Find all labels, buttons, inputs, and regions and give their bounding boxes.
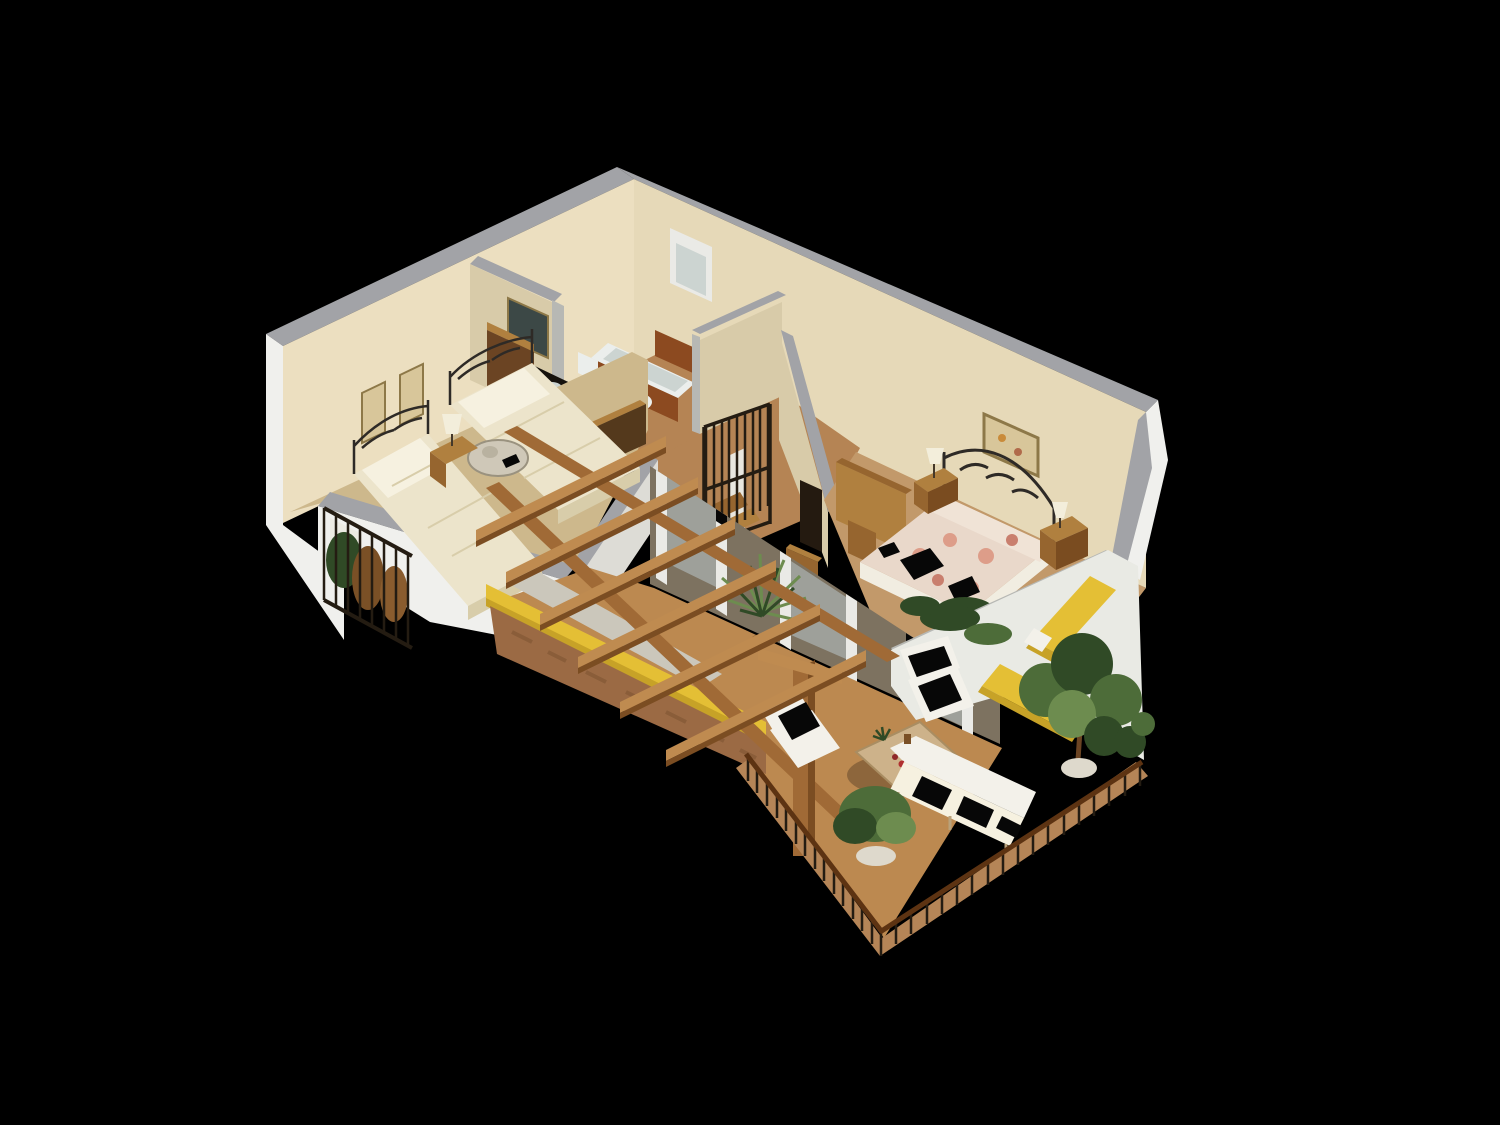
wall-picture-2 (400, 364, 423, 425)
hall-doorway (800, 480, 822, 552)
floral-blob-5 (932, 574, 944, 586)
corner-plant-2 (1131, 712, 1155, 736)
art-flower-2 (1014, 448, 1022, 456)
floral-blob-2 (943, 533, 957, 547)
tree-pot (1061, 758, 1097, 778)
floral-blob-3 (978, 548, 994, 564)
parapet-shrub-3 (900, 596, 940, 616)
tray-teapot (482, 446, 498, 458)
floorplan-svg (0, 0, 1500, 1125)
render-canvas (0, 0, 1500, 1125)
breakfast-tray (468, 440, 528, 476)
floral-blob-4 (1006, 534, 1018, 546)
p2-wall-edge (692, 334, 700, 434)
round-plant-foliage-2 (833, 808, 877, 844)
balcony-plant-dry-1 (352, 546, 384, 610)
parapet-shrub-2 (964, 623, 1012, 645)
round-plant-pot (856, 846, 896, 866)
round-plant-foliage-3 (876, 812, 916, 844)
table-flower-3 (892, 754, 898, 760)
art-flower-1 (998, 434, 1006, 442)
table-sculpture (904, 734, 911, 744)
